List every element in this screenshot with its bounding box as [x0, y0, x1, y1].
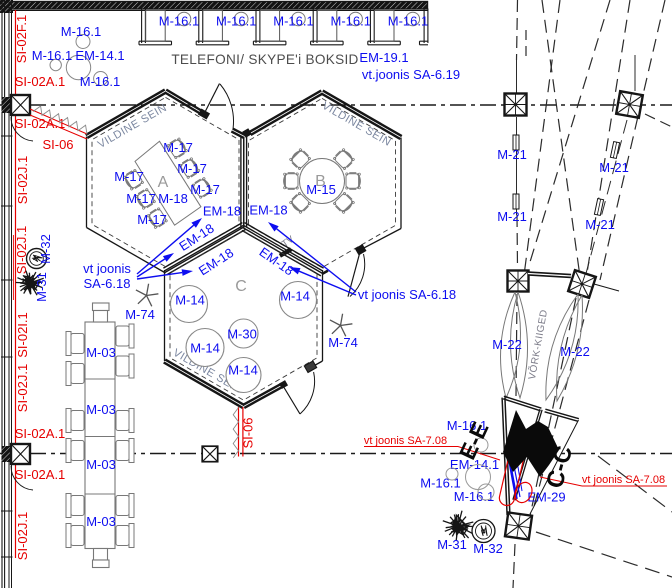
svg-text:M-16.1: M-16.1: [216, 14, 256, 29]
svg-text:M-21: M-21: [497, 147, 527, 162]
svg-text:TELEFONI/ SKYPE'i BOKSID: TELEFONI/ SKYPE'i BOKSID: [171, 52, 358, 67]
svg-text:M-16.1: M-16.1: [80, 74, 120, 89]
svg-text:SI-02A.1: SI-02A.1: [15, 116, 66, 131]
svg-text:EM-18: EM-18: [249, 203, 287, 218]
svg-text:M-14: M-14: [228, 363, 258, 378]
svg-text:M-21: M-21: [585, 217, 615, 232]
svg-text:M-16.1: M-16.1: [273, 14, 313, 29]
svg-text:M-21: M-21: [599, 160, 629, 175]
svg-text:M-16.1: M-16.1: [61, 24, 101, 39]
svg-text:vt.joonis SA-6.19: vt.joonis SA-6.19: [362, 67, 460, 82]
svg-text:M-16.1: M-16.1: [331, 14, 371, 29]
svg-text:M-74: M-74: [328, 335, 358, 350]
svg-text:M-14: M-14: [280, 289, 310, 304]
svg-text:SI-02J.1: SI-02J.1: [15, 156, 30, 204]
svg-text:SA-6.18: SA-6.18: [84, 276, 131, 291]
svg-text:M-17: M-17: [190, 182, 220, 197]
svg-text:M-16.1: M-16.1: [32, 48, 72, 63]
svg-text:M-03: M-03: [86, 457, 116, 472]
svg-text:EM-18: EM-18: [203, 204, 241, 219]
svg-text:A: A: [158, 174, 169, 191]
svg-text:M-31: M-31: [34, 272, 49, 302]
svg-text:M-16.1: M-16.1: [388, 14, 428, 29]
svg-text:vt joonis SA-7.08: vt joonis SA-7.08: [582, 474, 665, 486]
svg-text:M-17: M-17: [177, 161, 207, 176]
svg-text:C: C: [235, 278, 247, 295]
svg-text:M-17: M-17: [137, 212, 167, 227]
svg-text:vt joonis SA-6.18: vt joonis SA-6.18: [358, 287, 456, 302]
svg-text:M-16.1: M-16.1: [454, 489, 494, 504]
svg-text:vt joonis: vt joonis: [83, 261, 131, 276]
svg-text:SI-02A.1: SI-02A.1: [15, 467, 66, 482]
svg-text:M-31: M-31: [437, 537, 467, 552]
svg-text:M-32: M-32: [38, 234, 53, 264]
svg-text:M-17: M-17: [114, 169, 144, 184]
svg-text:M-14: M-14: [190, 341, 220, 356]
svg-text:SI-02A.1: SI-02A.1: [15, 74, 66, 89]
svg-text:vt joonis SA-7.08: vt joonis SA-7.08: [364, 435, 447, 447]
svg-text:SI-02J.1: SI-02J.1: [15, 512, 30, 560]
svg-text:M-03: M-03: [86, 514, 116, 529]
svg-text:M-30: M-30: [227, 327, 257, 342]
svg-text:M-21: M-21: [497, 209, 527, 224]
svg-text:M-74: M-74: [125, 307, 155, 322]
svg-text:M-17: M-17: [163, 140, 193, 155]
svg-text:EM-29: EM-29: [527, 490, 565, 505]
svg-text:M-14: M-14: [175, 293, 205, 308]
svg-text:SI-02J.1: SI-02J.1: [15, 364, 30, 412]
svg-text:M-22: M-22: [492, 337, 522, 352]
svg-text:SI-06: SI-06: [241, 417, 256, 448]
svg-text:M-15: M-15: [306, 182, 336, 197]
svg-text:M-16.1: M-16.1: [159, 14, 199, 29]
svg-text:M-32: M-32: [473, 541, 503, 556]
svg-text:M-03: M-03: [86, 402, 116, 417]
svg-text:SI-02A.1: SI-02A.1: [15, 426, 66, 441]
svg-text:SI-02J.1: SI-02J.1: [14, 226, 29, 274]
svg-text:M-17: M-17: [126, 191, 156, 206]
svg-text:M-22: M-22: [560, 344, 590, 359]
svg-text:SI-06: SI-06: [42, 137, 73, 152]
svg-text:SI-02I.1: SI-02I.1: [15, 312, 30, 358]
svg-text:M-03: M-03: [86, 345, 116, 360]
svg-text:SI-02F.1: SI-02F.1: [14, 15, 29, 63]
svg-text:M-18: M-18: [158, 191, 188, 206]
svg-text:EM-19.1: EM-19.1: [359, 50, 408, 65]
svg-text:EM-14.1: EM-14.1: [75, 48, 124, 63]
